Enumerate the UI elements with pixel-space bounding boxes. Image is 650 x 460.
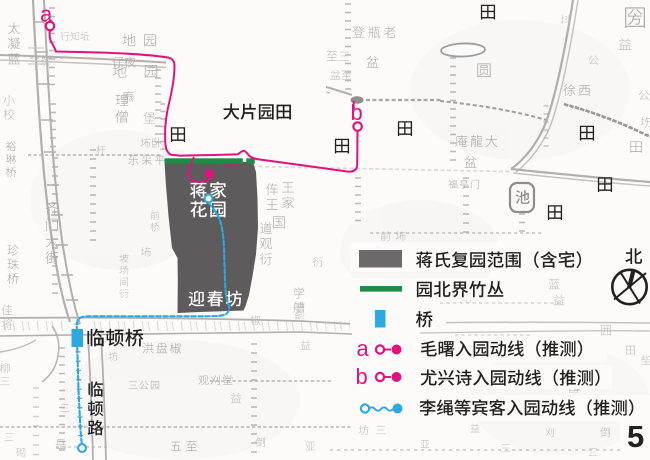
svg-text:5: 5 [627,419,644,454]
svg-text:a: a [357,336,370,361]
svg-text:b: b [356,364,368,389]
svg-text:a: a [40,2,53,27]
svg-text:b: b [351,100,363,125]
